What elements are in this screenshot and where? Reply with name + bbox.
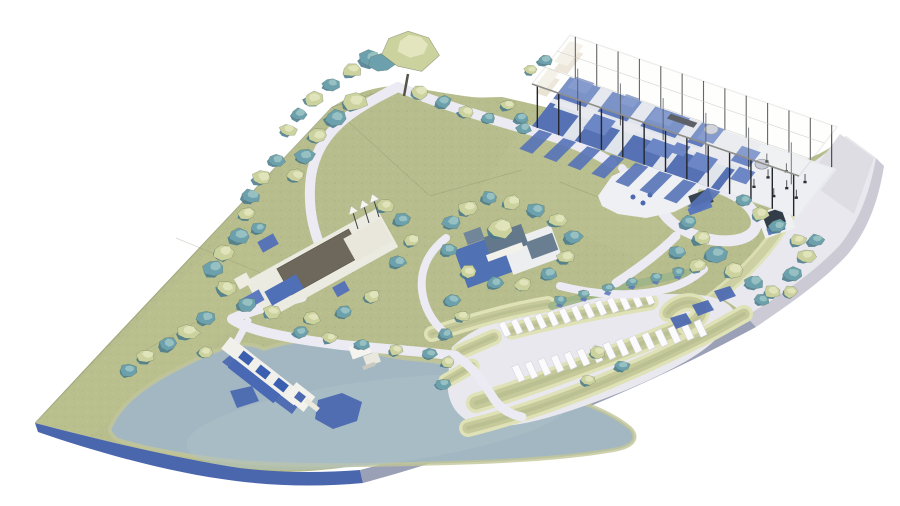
terrace-table [803, 181, 806, 183]
plaza-furniture [631, 195, 636, 200]
plaza-furniture [641, 201, 646, 206]
tree [290, 108, 307, 123]
tree [322, 79, 340, 91]
terrace-table [785, 187, 788, 189]
tree [536, 55, 553, 66]
site-plan-rendering [0, 0, 900, 506]
terrace-table [795, 196, 798, 198]
tree [524, 65, 538, 75]
terrace-table [752, 186, 755, 188]
tree [343, 64, 361, 78]
tree [263, 305, 281, 319]
site-plan-svg [0, 0, 900, 506]
tree [302, 91, 323, 107]
tree [279, 124, 297, 137]
scene-layers [0, 0, 900, 506]
terrace-table [766, 176, 769, 178]
tree [250, 170, 270, 185]
